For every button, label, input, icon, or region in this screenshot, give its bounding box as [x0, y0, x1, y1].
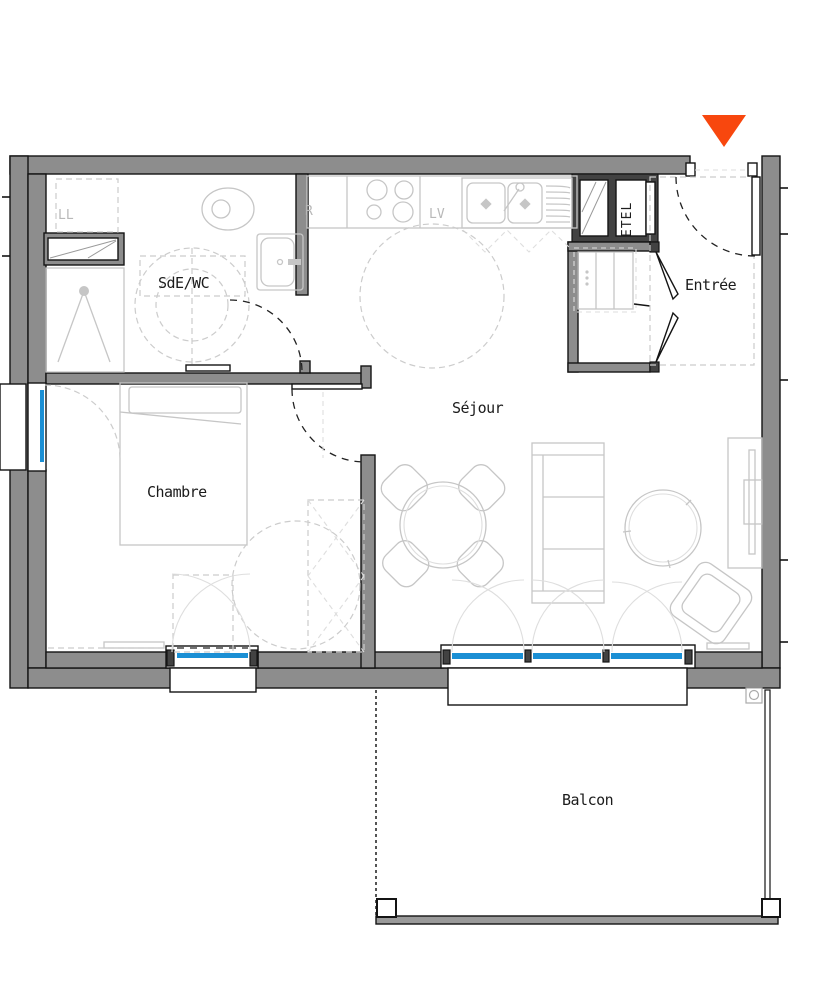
coffee-table: [623, 490, 701, 568]
window-sejour-balcony-door: [441, 645, 695, 705]
bathroom-door: [186, 300, 302, 372]
room-label-sde-wc: SdE/WC: [158, 274, 209, 292]
room-label-balcon: Balcon: [562, 791, 613, 809]
radiator: [104, 642, 164, 648]
bedroom-furniture: [45, 383, 365, 652]
turning-circle-bathroom: [135, 248, 249, 362]
room-label-sejour: Séjour: [452, 399, 503, 417]
entrance: [650, 115, 760, 365]
living-room-furniture: [377, 438, 762, 652]
balcony-drain: [746, 688, 762, 703]
room-label-entree: Entrée: [685, 276, 736, 294]
floor-plan-drawing: [0, 0, 829, 1000]
label-washing-machine: LL: [58, 208, 74, 223]
bed: [120, 383, 247, 545]
tv-unit: [728, 438, 762, 568]
entrance-marker-icon: [702, 115, 746, 147]
technical-duct-etel: [572, 174, 658, 242]
wardrobe: [308, 500, 364, 652]
stove: [367, 180, 413, 222]
kitchen-sink: [462, 178, 572, 228]
turning-circle-kitchen: [360, 224, 504, 368]
label-dishwasher: LV: [429, 207, 445, 222]
bedroom-door: [292, 384, 365, 462]
entry-closet: [568, 242, 678, 372]
sofa: [532, 443, 604, 603]
radiator-sejour: [707, 643, 749, 649]
washing-machine-slot: [56, 179, 118, 232]
kitchen: [307, 176, 577, 368]
label-etel-duct: ETEL: [620, 181, 635, 237]
window-left: [0, 383, 46, 471]
window-swing-left: [45, 385, 120, 460]
shower: [46, 268, 124, 372]
toilet: [202, 188, 254, 230]
label-fridge: R: [305, 204, 313, 219]
room-label-chambre: Chambre: [147, 483, 207, 501]
window-chambre: [166, 646, 258, 692]
floor-plan: SdE/WC Chambre Séjour Entrée Balcon LL R…: [0, 0, 829, 1000]
dining-table: [377, 460, 510, 591]
turning-circle-bedroom: [232, 521, 360, 649]
entrance-door: [676, 177, 760, 256]
